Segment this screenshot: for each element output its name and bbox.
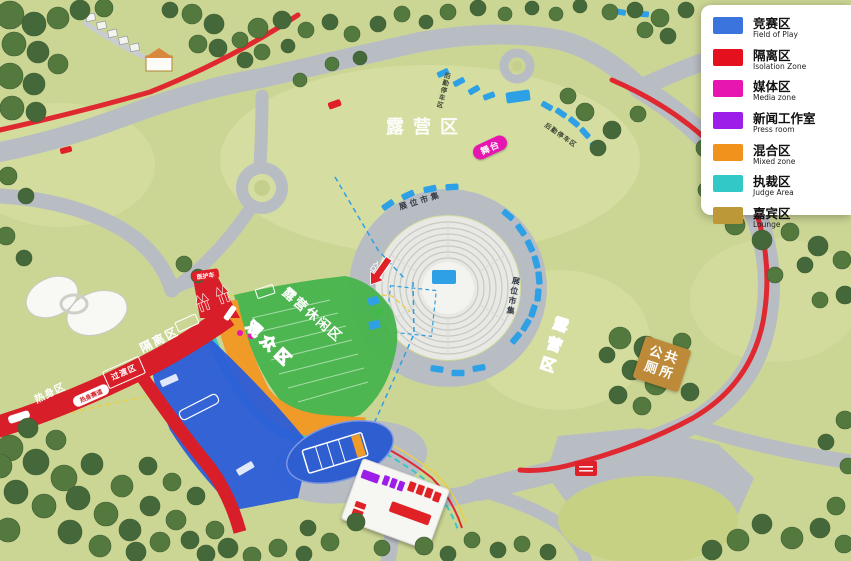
venue-map: 露营区 露营区 露营休闲区 观众区 隔离区 热身区 过渡区 热身赛道 舞台 公共… [0,0,851,561]
legend-item-media: 媒体区 Media zone [713,80,845,102]
legend-item-isolation: 隔离区 Isolation Zone [713,49,845,71]
legend-swatch-mixed [713,144,743,161]
camping-area-label-center: 露营区 [386,118,467,139]
legend-item-press: 新闻工作室 Press room [713,112,845,134]
legend-item-mixed: 混合区 Mixed zone [713,144,845,166]
legend-swatch-judge [713,175,743,192]
roundabout-island [254,180,270,196]
legend-swatch-fop [713,17,743,34]
legend-item-fop: 竞赛区 Field of Play [713,17,845,39]
roundabout-island-2 [512,61,522,71]
legend-item-lounge: 嘉宾区 Lounge [713,207,845,229]
legend-swatch-media [713,80,743,97]
legend-swatch-press [713,112,743,129]
legend-item-judge: 执裁区 Judge Area [713,175,845,197]
legend-swatch-lounge [713,207,743,224]
legend-card: 竞赛区 Field of Play 隔离区 Isolation Zone 媒体区… [701,5,851,215]
legend-swatch-isolation [713,49,743,66]
